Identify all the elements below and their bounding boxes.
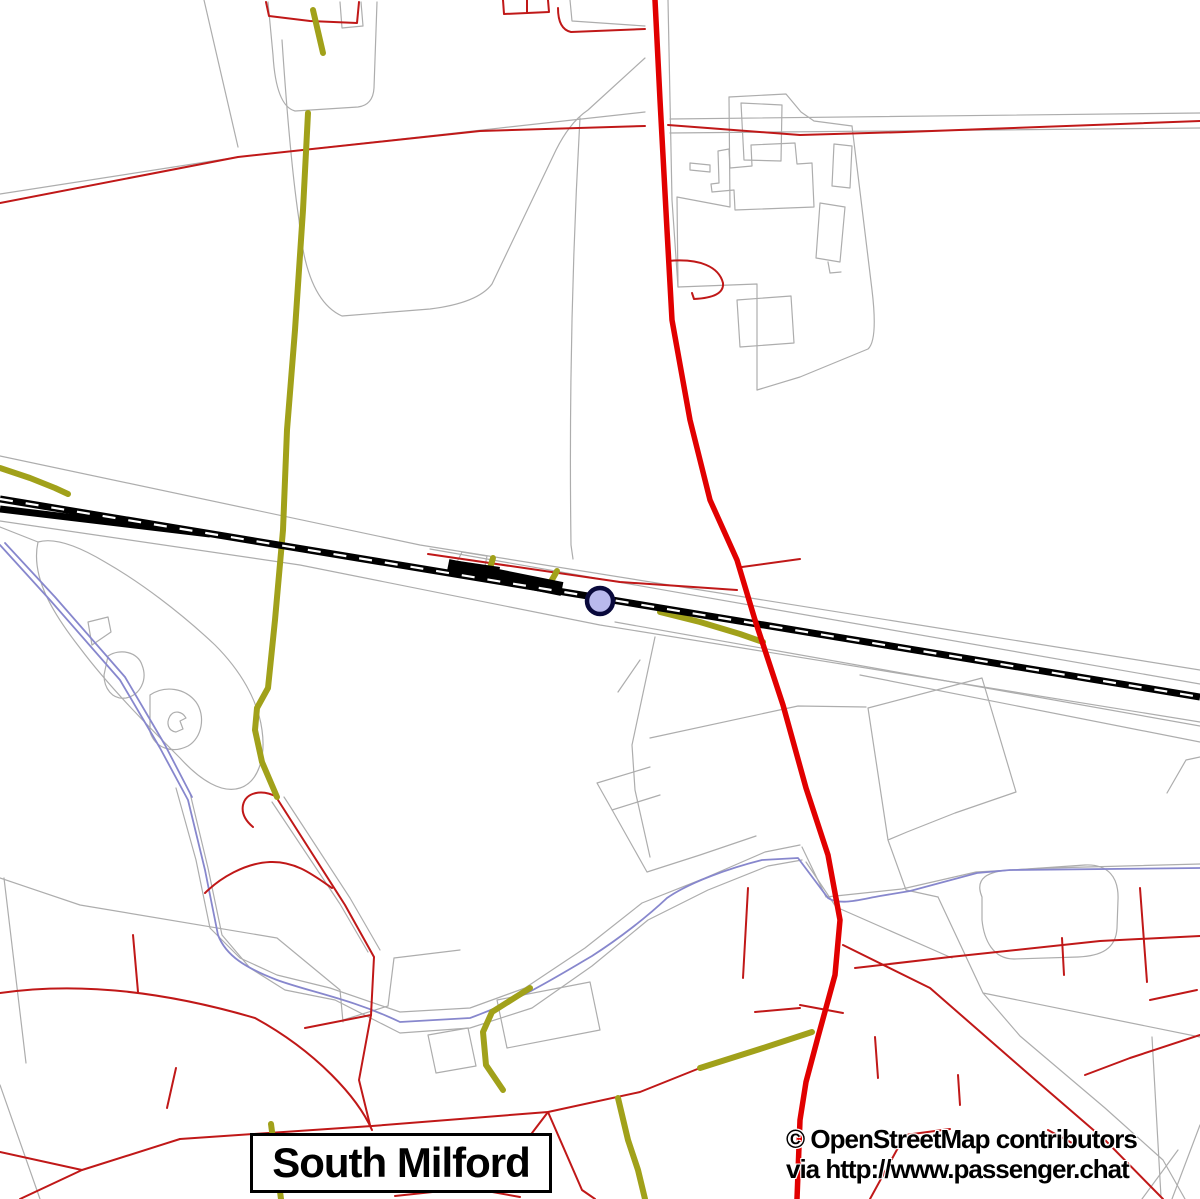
boundaries-gray-path — [711, 143, 814, 210]
tracks-olive-path — [700, 1032, 812, 1068]
roads-red-thin-path — [742, 559, 800, 567]
roads-red-thin-path — [205, 862, 332, 893]
boundaries-gray-path — [737, 296, 794, 347]
roads-red-thin-path — [278, 800, 374, 1125]
boundaries-gray-path — [816, 203, 845, 273]
roads-red-thin-path — [743, 888, 748, 978]
boundaries-gray-path — [0, 527, 38, 542]
boundaries-gray-path — [430, 549, 1200, 684]
boundaries-gray-path — [168, 712, 186, 732]
tracks-olive-path — [618, 1098, 645, 1199]
boundaries-gray-path — [670, 113, 1200, 119]
boundaries-gray-path — [0, 112, 645, 194]
place-label-box: South Milford — [250, 1133, 552, 1193]
roads-red-thin-path — [133, 935, 138, 992]
boundaries-gray-path — [0, 456, 1200, 670]
attribution-line1: © OpenStreetMap contributors — [786, 1124, 1137, 1154]
roads-red-thin-path — [548, 1112, 595, 1199]
tracks-olive-path — [0, 468, 68, 494]
boundaries-gray-path — [618, 660, 640, 692]
boundaries-gray-path — [36, 541, 263, 790]
map-attribution: © OpenStreetMap contributors via http://… — [786, 1124, 1137, 1184]
roads-red-thin-path — [0, 988, 372, 1130]
boundaries-gray-path — [868, 678, 1016, 897]
roads-red-thin-path — [167, 1068, 176, 1108]
boundaries-gray-path — [729, 94, 852, 126]
roads-red-thin-path — [1085, 1035, 1200, 1075]
layer-tracks-olive — [0, 10, 812, 1199]
tracks-olive-path — [483, 988, 530, 1090]
boundaries-gray-path — [806, 862, 952, 958]
map-canvas — [0, 0, 1200, 1199]
boundaries-gray-path — [88, 617, 111, 645]
railway-station-marker — [587, 588, 613, 614]
roads-red-thin-path — [1150, 990, 1197, 1000]
boundaries-gray-path — [980, 865, 1118, 959]
roads-red-thin-path — [503, 0, 549, 14]
boundaries-gray-path — [570, 0, 645, 26]
roads-red-thin-path — [855, 936, 1200, 968]
roads-red-thin-path — [755, 1008, 800, 1012]
boundaries-gray-path — [650, 706, 866, 738]
roads-red-thin-path — [668, 121, 1200, 135]
boundaries-gray-path — [615, 622, 1200, 726]
boundaries-gray-path — [0, 521, 1200, 722]
roads-red-thin-path — [305, 1015, 371, 1028]
boundaries-gray-path — [282, 40, 645, 316]
railway-track-path — [0, 509, 210, 534]
boundaries-gray-path — [176, 788, 800, 1012]
tracks-olive-path — [313, 10, 323, 53]
tracks-olive-path — [255, 113, 308, 797]
roads-red-thin-path — [875, 888, 1147, 1105]
roads-red-thin-path — [0, 126, 645, 203]
map-viewport: South Milford © OpenStreetMap contributo… — [0, 0, 1200, 1199]
boundaries-gray-path — [597, 767, 756, 872]
boundaries-gray-path — [632, 637, 655, 857]
attribution-line2: via http://www.passenger.chat — [786, 1154, 1137, 1184]
boundaries-gray-path — [190, 793, 802, 1033]
boundaries-gray-path — [832, 144, 852, 188]
boundaries-gray-path — [690, 163, 710, 172]
boundaries-gray-path — [204, 0, 238, 147]
roads-red-thin-path — [243, 793, 277, 827]
place-label-text: South Milford — [272, 1139, 530, 1187]
roads-red-thin-path — [800, 1005, 843, 1013]
boundaries-gray-path — [1167, 757, 1200, 793]
roads-red-thin-path — [20, 1170, 82, 1199]
roads-red-thin-path — [0, 1139, 180, 1170]
boundaries-gray-path — [150, 689, 202, 749]
boundaries-gray-path — [570, 118, 580, 559]
